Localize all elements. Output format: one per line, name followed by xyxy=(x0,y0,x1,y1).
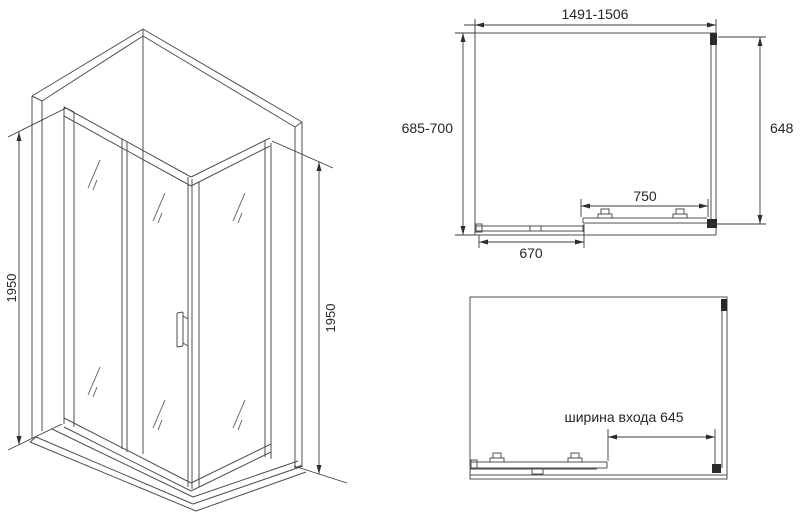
door-roller xyxy=(598,209,612,218)
door-roller xyxy=(673,209,687,218)
wall-profile-bottom-right xyxy=(712,464,721,473)
plan-open-frame xyxy=(470,297,727,479)
wall-profile-bottom-right xyxy=(707,219,717,228)
dim-height-left: 1950 xyxy=(4,108,66,450)
dim-side-panel-label: 648 xyxy=(770,120,794,136)
enclosure-frame xyxy=(64,107,271,491)
dim-width-total: 1491-1506 xyxy=(464,6,716,33)
dim-side-panel: 648 xyxy=(711,37,794,224)
wall-profile-top-right xyxy=(710,33,717,45)
dim-fixed-panel-label: 670 xyxy=(519,245,543,261)
technical-drawing: 1950 1950 xyxy=(0,0,800,518)
dim-fixed-panel: 670 xyxy=(479,224,584,261)
perspective-view: 1950 1950 xyxy=(4,29,347,511)
dim-height-right: 1950 xyxy=(272,141,347,483)
rail-bracket xyxy=(530,226,541,231)
plan-closed-rails xyxy=(476,209,707,232)
plan-closed-frame xyxy=(475,33,717,235)
dim-depth-total: 685-700 xyxy=(402,33,475,235)
dim-height-right-label: 1950 xyxy=(323,304,338,333)
dim-depth-total-label: 685-700 xyxy=(402,120,454,136)
dim-door-panel: 750 xyxy=(581,188,708,217)
drawing-page: 1950 1950 xyxy=(0,0,800,518)
dim-width-total-label: 1491-1506 xyxy=(562,6,629,22)
dim-entrance-width: ширина входа 645 xyxy=(564,409,715,464)
glass-reflection-marks xyxy=(88,160,245,430)
dim-entrance-width-label: ширина входа 645 xyxy=(564,409,683,425)
plan-view-open: ширина входа 645 xyxy=(470,297,727,479)
door-handle xyxy=(177,312,188,347)
dim-height-left-label: 1950 xyxy=(4,274,19,303)
plan-open-rails xyxy=(471,453,607,475)
door-roller xyxy=(568,453,582,462)
walls xyxy=(32,29,302,468)
rail-bracket xyxy=(532,469,543,474)
wall-profile-top-right xyxy=(721,299,727,311)
plan-view-closed: 1491-1506 685-700 648 750 670 xyxy=(402,6,794,261)
door-roller xyxy=(490,453,504,462)
dim-door-panel-label: 750 xyxy=(633,188,657,204)
